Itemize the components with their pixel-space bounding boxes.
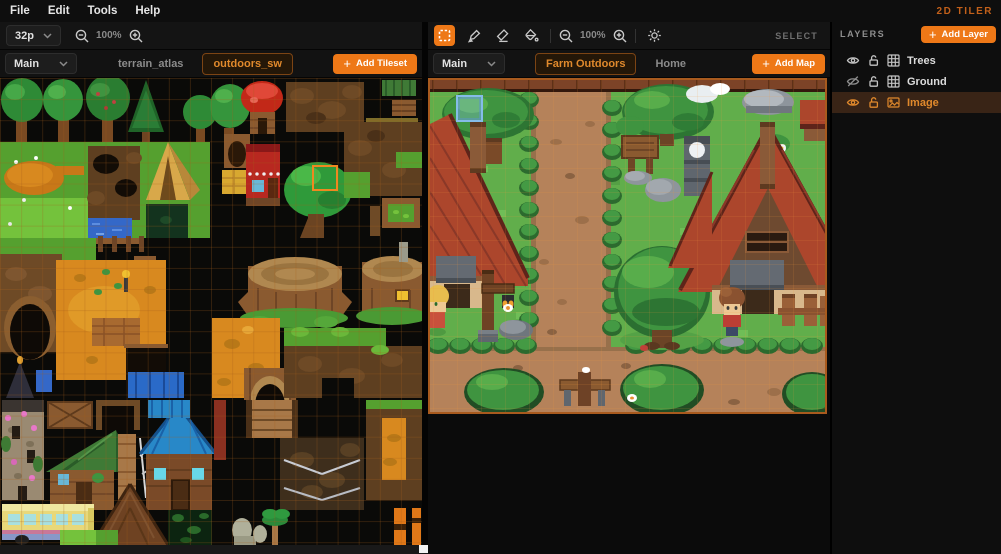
fill-bucket-tool-button[interactable]	[521, 25, 542, 46]
tab-home[interactable]: Home	[644, 53, 697, 75]
add-map-button[interactable]: + Add Map	[752, 54, 825, 74]
menu-file[interactable]: File	[10, 5, 30, 17]
gear-icon	[647, 28, 662, 43]
plus-icon: +	[762, 57, 770, 70]
map-canvas[interactable]	[430, 80, 825, 412]
tile-layer-icon	[887, 75, 900, 88]
app-brand: 2D TILER	[937, 6, 993, 17]
tileset-zoom-controls: 100%	[75, 29, 143, 43]
chevron-down-icon	[59, 61, 68, 67]
toolbar-separator	[550, 29, 551, 43]
chevron-down-icon	[487, 61, 496, 67]
tileset-panel: 32p 100% Main terrain_atlas outdoors_sw …	[0, 22, 422, 554]
app-window: File Edit Tools Help 2D TILER 32p 100% M…	[0, 0, 1001, 554]
tileset-canvas[interactable]	[0, 78, 422, 545]
plus-icon: +	[343, 57, 351, 70]
tileset-hscrollbar[interactable]	[0, 545, 430, 554]
zoom-out-icon[interactable]	[75, 29, 89, 43]
map-toolbar: 100% SELECT	[428, 22, 830, 50]
tile-size-dropdown[interactable]: 32p	[6, 25, 61, 46]
map-collection-value: Main	[442, 58, 467, 70]
layer-row-ground[interactable]: Ground	[832, 71, 1001, 92]
scrollbar-thumb[interactable]	[419, 545, 428, 553]
eye-icon[interactable]	[846, 96, 860, 109]
tile-size-value: 32p	[15, 30, 34, 42]
layers-header: LAYERS + Add Layer	[832, 22, 1001, 46]
tab-terrain-atlas[interactable]: terrain_atlas	[107, 53, 194, 75]
add-layer-label: Add Layer	[942, 29, 988, 40]
map-panel: 100% SELECT Main Farm Outdoors Home + Ad…	[428, 22, 830, 554]
zoom-in-icon[interactable]	[613, 29, 627, 43]
layer-name: Ground	[907, 76, 947, 88]
map-zoom-controls: 100%	[559, 29, 627, 43]
layers-title: LAYERS	[840, 29, 885, 39]
eye-off-icon[interactable]	[846, 75, 860, 88]
menu-edit[interactable]: Edit	[48, 5, 70, 17]
layer-name: Image	[907, 97, 939, 109]
tab-farm-outdoors[interactable]: Farm Outdoors	[535, 53, 636, 75]
add-map-label: Add Map	[775, 58, 815, 69]
menu-bar: File Edit Tools Help 2D TILER	[0, 0, 1001, 22]
eraser-icon	[496, 29, 510, 43]
plus-icon: +	[929, 28, 937, 41]
eraser-tool-button[interactable]	[492, 25, 513, 46]
marquee-icon	[438, 29, 451, 42]
layer-row-image[interactable]: Image	[832, 92, 1001, 113]
settings-button[interactable]	[644, 25, 665, 46]
paint-bucket-icon	[524, 28, 539, 43]
layer-name: Trees	[907, 55, 936, 67]
menu-tools[interactable]: Tools	[88, 5, 118, 17]
map-zoom-level: 100%	[580, 30, 606, 41]
select-tool-button[interactable]	[434, 25, 455, 46]
toolbar-separator	[635, 29, 636, 43]
eye-icon[interactable]	[846, 54, 860, 67]
brush-tool-button[interactable]	[463, 25, 484, 46]
tileset-collection-dropdown[interactable]: Main	[5, 53, 77, 74]
map-viewport	[428, 78, 827, 414]
zoom-in-icon[interactable]	[129, 29, 143, 43]
tileset-collection-value: Main	[14, 58, 39, 70]
zoom-out-icon[interactable]	[559, 29, 573, 43]
mode-indicator: SELECT	[775, 31, 824, 41]
unlock-icon[interactable]	[867, 54, 880, 67]
tab-outdoors-sw[interactable]: outdoors_sw	[202, 53, 292, 75]
add-tileset-label: Add Tileset	[356, 58, 407, 69]
add-layer-button[interactable]: + Add Layer	[921, 26, 996, 43]
add-tileset-button[interactable]: + Add Tileset	[333, 54, 417, 74]
tileset-tabsbar: Main terrain_atlas outdoors_sw + Add Til…	[0, 50, 422, 78]
map-collection-dropdown[interactable]: Main	[433, 53, 505, 74]
tile-layer-icon	[887, 54, 900, 67]
layer-row-trees[interactable]: Trees	[832, 50, 1001, 71]
image-layer-icon	[887, 96, 900, 109]
menu-help[interactable]: Help	[135, 5, 160, 17]
layers-list: Trees Ground Image	[832, 46, 1001, 113]
unlock-icon[interactable]	[867, 96, 880, 109]
layers-panel: LAYERS + Add Layer Trees Ground	[830, 22, 1001, 554]
map-tabsbar: Main Farm Outdoors Home + Add Map	[428, 50, 830, 78]
chevron-down-icon	[43, 33, 52, 39]
tileset-toolbar: 32p 100%	[0, 22, 422, 50]
tileset-zoom-level: 100%	[96, 30, 122, 41]
unlock-icon[interactable]	[867, 75, 880, 88]
brush-icon	[467, 29, 481, 43]
